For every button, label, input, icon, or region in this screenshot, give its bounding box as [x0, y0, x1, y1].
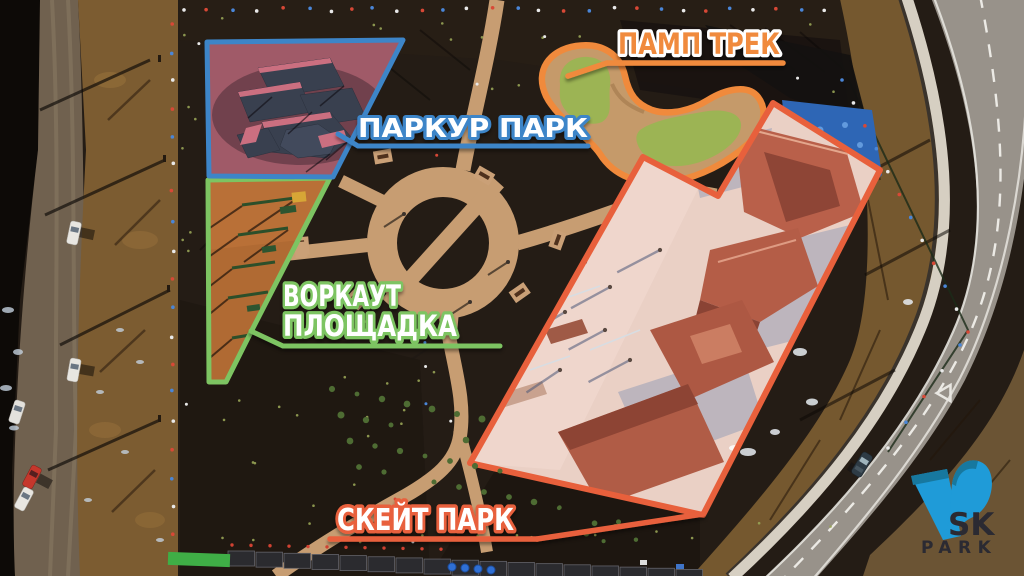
label-pump-track: ПАМП ТРЕК	[618, 27, 780, 61]
seedling	[223, 419, 226, 422]
flag-marker	[170, 389, 174, 393]
seedling	[400, 422, 403, 425]
seedling	[758, 522, 761, 525]
seedling	[221, 537, 224, 540]
bush	[431, 479, 436, 484]
bush	[463, 437, 470, 444]
fence-panel	[284, 553, 311, 568]
seedling	[491, 88, 494, 91]
bush	[506, 494, 512, 500]
flag-marker	[465, 7, 469, 11]
seedling	[594, 534, 597, 537]
flag-marker	[170, 52, 174, 56]
seedling	[386, 382, 389, 385]
flag-marker	[491, 6, 495, 10]
bush	[337, 411, 344, 418]
bush	[381, 469, 386, 474]
seedling	[367, 435, 370, 438]
fence-panel	[536, 564, 563, 576]
seedling	[433, 371, 436, 374]
flag-marker	[940, 369, 944, 373]
flag-marker	[344, 546, 347, 549]
flag-marker	[171, 363, 175, 367]
flag-marker	[170, 477, 174, 481]
seedling	[308, 522, 311, 525]
bush	[397, 448, 403, 454]
flag-marker	[439, 547, 442, 550]
flag-marker	[204, 8, 208, 12]
flag-marker	[424, 365, 427, 368]
flag-marker	[171, 107, 175, 111]
flag-marker	[171, 419, 175, 423]
flag-marker	[170, 22, 174, 26]
flag-marker	[958, 343, 962, 347]
fence-panel	[340, 556, 367, 571]
flag-marker	[588, 9, 592, 13]
bush	[404, 401, 411, 408]
flag-marker	[197, 42, 200, 45]
flag-marker	[394, 498, 397, 501]
seedling	[403, 409, 406, 412]
flag-marker	[172, 505, 176, 509]
flag-marker	[424, 402, 427, 405]
flag-marker	[350, 7, 354, 11]
flag-marker	[171, 220, 175, 224]
flag-marker	[306, 545, 309, 548]
bush	[531, 499, 538, 506]
seedling	[343, 376, 346, 379]
flag-marker	[287, 544, 290, 547]
seedling	[181, 147, 184, 150]
blue-barrel	[487, 566, 495, 574]
bush	[602, 539, 606, 543]
fence-panel	[508, 563, 535, 576]
label-workout-line1: ВОРКАУТ	[283, 279, 401, 313]
flag-marker	[231, 8, 235, 12]
flag-marker	[171, 135, 175, 139]
blue-barrel	[474, 565, 482, 573]
person	[628, 358, 632, 362]
flag-marker	[170, 448, 174, 452]
person	[506, 260, 510, 264]
fence-panel	[228, 551, 255, 566]
person	[402, 212, 406, 216]
bush	[423, 454, 428, 459]
flag-marker	[852, 101, 856, 105]
flag-marker	[401, 547, 404, 550]
flag-marker	[922, 395, 926, 399]
material-crate	[640, 560, 647, 565]
flag-marker	[172, 162, 176, 166]
flag-marker	[230, 543, 233, 546]
flag-marker	[435, 154, 438, 157]
seedling	[353, 483, 356, 486]
seedling	[516, 534, 519, 537]
flag-marker	[875, 147, 879, 151]
bush	[454, 411, 460, 417]
flag-marker	[363, 546, 366, 549]
logo-text-park: PARK	[921, 538, 997, 558]
aerial-park-photo: ПАМП ТРЕК ПАРКУР ПАРК ВОРКАУТ ПЛОЩАДКА С…	[0, 0, 1024, 576]
flag-marker	[774, 7, 778, 11]
seedling	[187, 106, 190, 109]
flag-marker	[171, 78, 175, 82]
flag-marker	[325, 545, 328, 548]
seedling	[481, 36, 484, 39]
flag-marker	[932, 261, 936, 265]
flag-marker	[728, 7, 732, 11]
flag-marker	[800, 8, 804, 12]
seedling	[691, 537, 694, 540]
flag-marker	[281, 6, 285, 10]
green-fence-segment	[168, 552, 230, 567]
seedling	[296, 414, 299, 417]
flag-marker	[476, 83, 479, 86]
flag-marker	[171, 305, 175, 309]
bush	[478, 415, 485, 422]
seedling	[450, 38, 453, 41]
flag-marker	[543, 35, 546, 38]
flag-marker	[751, 8, 755, 12]
flag-marker	[170, 189, 174, 193]
person	[563, 310, 567, 314]
seedling	[187, 250, 190, 253]
bush	[497, 468, 502, 473]
bush	[481, 489, 487, 495]
flag-marker	[516, 6, 520, 10]
fence-panel	[592, 566, 619, 576]
seedling	[829, 525, 832, 528]
flag-marker	[635, 6, 639, 10]
flag-marker	[382, 546, 385, 549]
seedling	[417, 379, 420, 382]
blue-barrel	[448, 563, 456, 571]
flag-marker	[330, 10, 334, 14]
bush	[329, 386, 335, 392]
flag-marker	[185, 403, 188, 406]
person	[558, 368, 562, 372]
flag-marker	[441, 8, 445, 12]
seedling	[517, 84, 520, 87]
seedling	[379, 27, 382, 30]
person	[608, 285, 612, 289]
flag-marker	[370, 6, 374, 10]
flag-marker	[170, 336, 174, 340]
flag-marker	[395, 9, 399, 13]
flag-marker	[308, 7, 312, 11]
flag-marker	[796, 77, 799, 80]
seedling	[278, 406, 281, 409]
annotation-parkour-park: ПАРКУР ПАРК	[338, 114, 588, 146]
flag-marker	[904, 420, 908, 424]
fence-panel	[396, 558, 423, 573]
flag-marker	[562, 9, 566, 13]
flag-marker	[822, 9, 826, 13]
flag-marker	[955, 307, 959, 311]
blue-barrel	[461, 564, 469, 572]
bush	[429, 406, 436, 413]
flag-marker	[421, 9, 425, 13]
left-roadside	[0, 0, 178, 576]
fence-panel	[256, 552, 283, 567]
flag-marker	[886, 446, 890, 450]
flag-marker	[704, 9, 708, 13]
seedling	[238, 399, 241, 402]
label-skate-park: СКЕЙТ ПАРК	[337, 502, 514, 538]
flag-marker	[943, 284, 947, 288]
seedling	[655, 530, 658, 533]
flag-marker	[537, 9, 541, 13]
flag-marker	[909, 216, 913, 220]
fence-panel	[620, 567, 647, 576]
bush	[447, 458, 453, 464]
flag-marker	[863, 124, 867, 128]
bush	[355, 392, 360, 397]
fence-panel	[564, 565, 591, 576]
bush	[557, 505, 561, 509]
seedling	[221, 17, 224, 20]
bush	[372, 443, 377, 448]
material-crate	[676, 564, 684, 569]
bush	[472, 463, 478, 469]
seedling	[252, 461, 255, 464]
flag-marker	[920, 239, 924, 243]
fence-panel	[368, 557, 395, 572]
flag-marker	[660, 7, 664, 11]
person	[468, 300, 472, 304]
flag-marker	[420, 547, 423, 550]
yellow-bench	[292, 191, 307, 202]
seedling	[194, 118, 197, 121]
label-parkour-park: ПАРКУР ПАРК	[358, 114, 588, 144]
flag-marker	[172, 250, 176, 254]
person	[658, 248, 662, 252]
fence-panel	[424, 559, 451, 574]
flag-marker	[886, 170, 890, 174]
flag-marker	[249, 544, 252, 547]
bush	[347, 438, 354, 445]
bush	[363, 417, 369, 423]
flag-marker	[182, 8, 186, 12]
seedling	[181, 239, 184, 242]
fence-panel	[648, 568, 675, 576]
flag-marker	[171, 532, 175, 536]
seedling	[832, 90, 835, 93]
flag-marker	[840, 78, 844, 82]
bush	[389, 423, 394, 428]
seedling	[809, 23, 812, 26]
flag-marker	[613, 6, 617, 10]
flag-marker	[171, 277, 175, 281]
seedling	[189, 231, 192, 234]
fence-panel	[312, 554, 339, 569]
bush	[634, 537, 638, 541]
person	[603, 328, 607, 332]
flag-marker	[255, 9, 259, 13]
seedling	[373, 24, 376, 27]
flag-marker	[897, 193, 901, 197]
flag-marker	[268, 544, 271, 547]
seedling	[183, 34, 186, 37]
bush	[379, 396, 385, 402]
seedling	[312, 504, 315, 507]
label-workout-line2: ПЛОЩАДКА	[283, 309, 457, 343]
seedling	[578, 35, 581, 38]
bush	[592, 520, 598, 526]
bush	[616, 519, 621, 524]
seedling	[252, 539, 255, 542]
fence-panel	[676, 569, 703, 576]
bush	[356, 464, 362, 470]
bush	[456, 484, 462, 490]
flag-marker	[966, 330, 970, 334]
flag-marker	[449, 420, 452, 423]
flag-marker	[682, 9, 686, 13]
seedling	[441, 22, 444, 25]
